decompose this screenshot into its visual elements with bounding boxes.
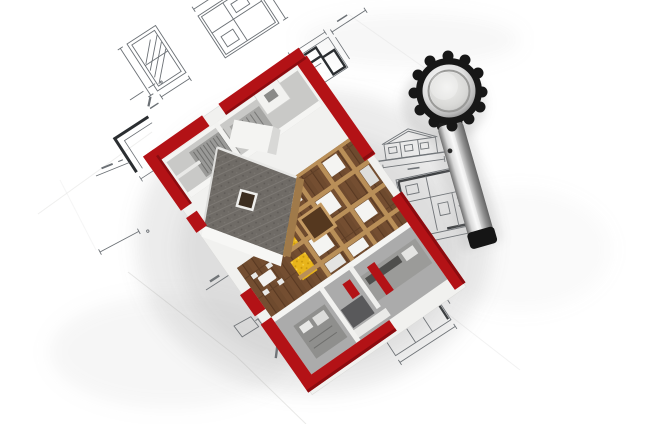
roof-window bbox=[237, 190, 257, 210]
photo-canvas bbox=[0, 0, 650, 424]
lens-highlight bbox=[430, 72, 458, 100]
